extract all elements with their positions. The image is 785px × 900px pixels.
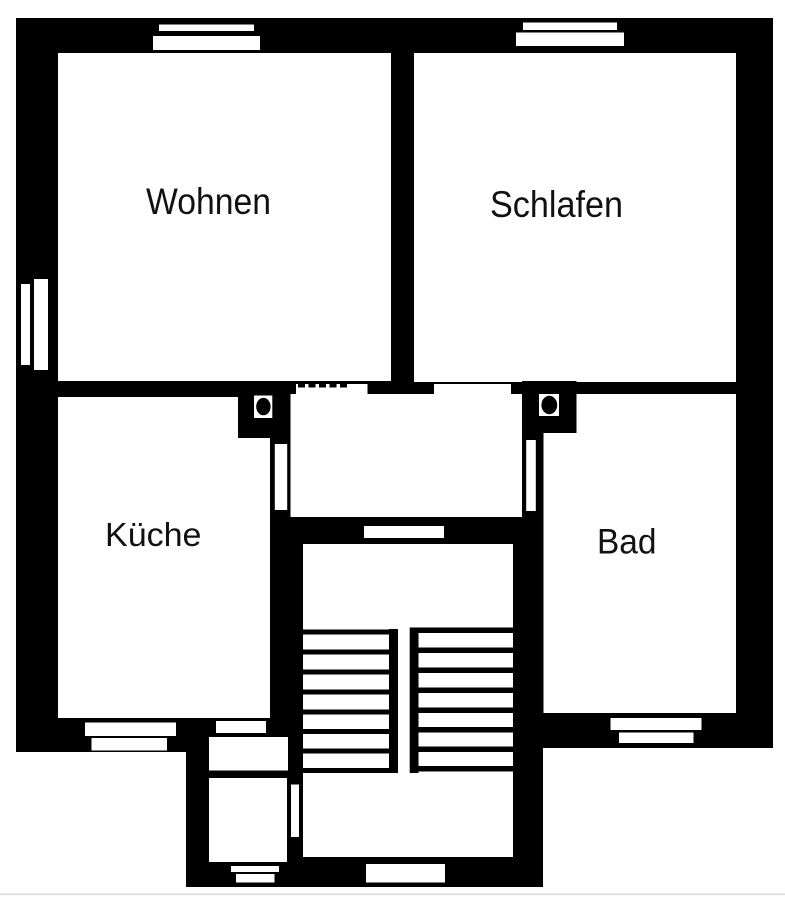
svg-text:Bad: Bad bbox=[597, 522, 657, 562]
svg-text:Schlafen: Schlafen bbox=[490, 184, 623, 225]
svg-text:Küche: Küche bbox=[105, 517, 202, 554]
svg-text:Wohnen: Wohnen bbox=[146, 181, 271, 222]
